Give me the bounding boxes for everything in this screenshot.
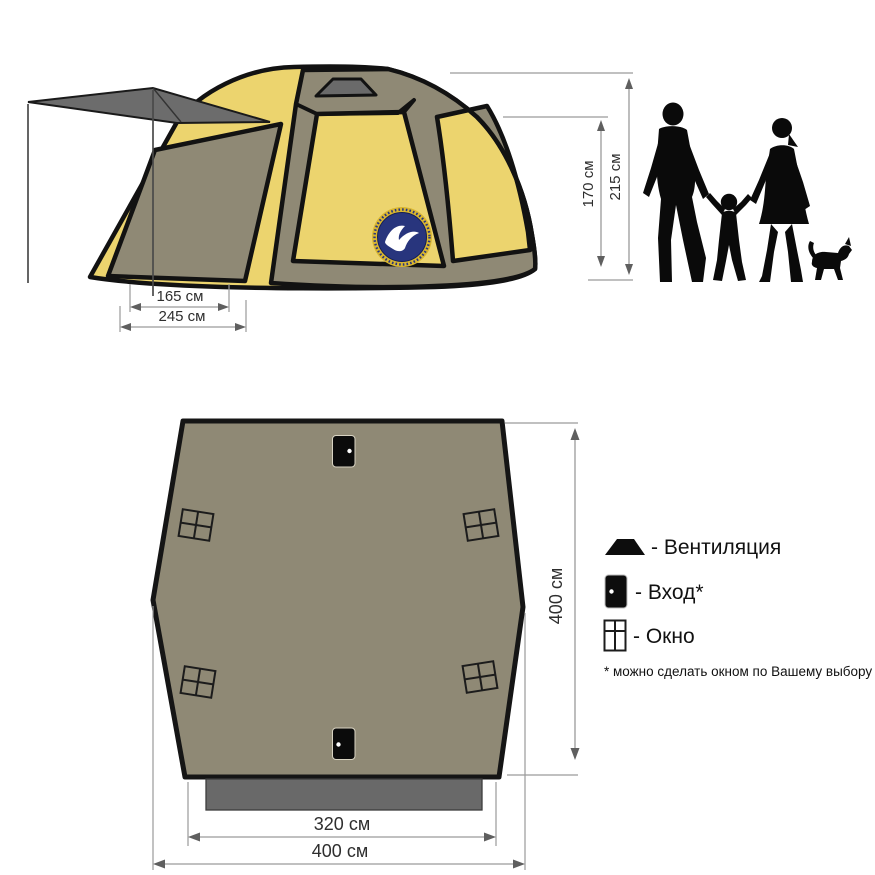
dim-plan-width-outer: 400 см: [312, 841, 368, 861]
arrow-left-icon: [130, 303, 141, 311]
door-top: [333, 436, 356, 468]
dim-depth-outer: 245 см: [158, 308, 205, 325]
door-icon: [605, 575, 627, 608]
legend-window-label: - Окно: [633, 625, 695, 648]
arrow-left-icon: [188, 833, 200, 842]
family-silhouette: [643, 103, 852, 283]
tent-side-view: [28, 66, 535, 296]
arrow-right-icon: [218, 303, 229, 311]
arrow-down-icon: [571, 748, 580, 760]
dim-height-inner: 170 см: [580, 160, 597, 207]
dim-height-outer: 215 см: [607, 153, 624, 200]
dim-depth-inner: 165 см: [156, 288, 203, 305]
arrow-left-icon: [153, 860, 165, 869]
legend-footnote: * можно сделать окном по Вашему выбору: [604, 664, 872, 679]
legend-vent-label: - Вентиляция: [651, 536, 781, 559]
vent-icon: [605, 539, 645, 555]
window-icon: [605, 621, 626, 651]
arrow-right-icon: [235, 323, 246, 331]
floor-plan: [153, 421, 523, 810]
arrow-down-icon: [597, 256, 605, 267]
arrow-up-icon: [625, 78, 633, 89]
tent-spec-diagram: 170 см 215 см 165 см 245 см: [0, 0, 875, 875]
diagram-canvas: 170 см 215 см 165 см 245 см: [0, 0, 875, 875]
arrow-down-icon: [625, 264, 633, 275]
child-silhouette: [706, 193, 752, 281]
vestibule-footprint: [206, 779, 482, 810]
legend-door-label: - Вход*: [635, 581, 704, 604]
brand-logo: [372, 207, 432, 267]
arrow-right-icon: [513, 860, 525, 869]
arrow-up-icon: [571, 428, 580, 440]
woman-silhouette: [750, 118, 810, 282]
door-bottom: [333, 728, 356, 760]
man-silhouette: [643, 103, 709, 283]
legend: - Вентиляция - Вход* - Окно * можно сдел…: [604, 536, 872, 679]
arrow-left-icon: [120, 323, 131, 331]
floor-outline: [153, 421, 523, 777]
dim-plan-height: 400 см: [546, 568, 566, 624]
arrow-up-icon: [597, 120, 605, 131]
arrow-right-icon: [484, 833, 496, 842]
dog-silhouette: [808, 237, 852, 280]
dim-plan-width-inner: 320 см: [314, 814, 370, 834]
